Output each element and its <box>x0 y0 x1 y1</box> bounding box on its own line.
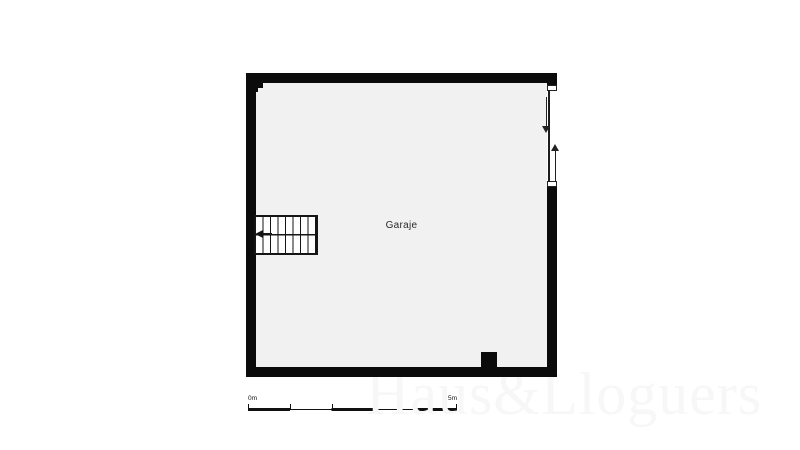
arrow-up-icon <box>555 151 556 181</box>
arrow-up-icon <box>551 144 559 151</box>
floor-plan-page: Haus&Lloguers 0m 5m <box>0 0 800 450</box>
scale-start-label: 0m <box>248 395 257 403</box>
wall-right-lower <box>547 187 557 377</box>
arrow-down-icon <box>546 97 547 126</box>
stair-direction-arrow-icon <box>255 230 263 238</box>
room-label: Garaje <box>256 220 547 231</box>
stair-direction-arrow-icon <box>263 233 272 235</box>
door-frame-bottom <box>547 181 557 187</box>
sliding-door-panel <box>548 91 550 181</box>
wall-bottom <box>246 367 557 377</box>
corner-column <box>246 73 258 92</box>
wall-top <box>246 73 557 83</box>
arrow-down-icon <box>542 126 550 133</box>
wall-pillar <box>481 352 497 367</box>
